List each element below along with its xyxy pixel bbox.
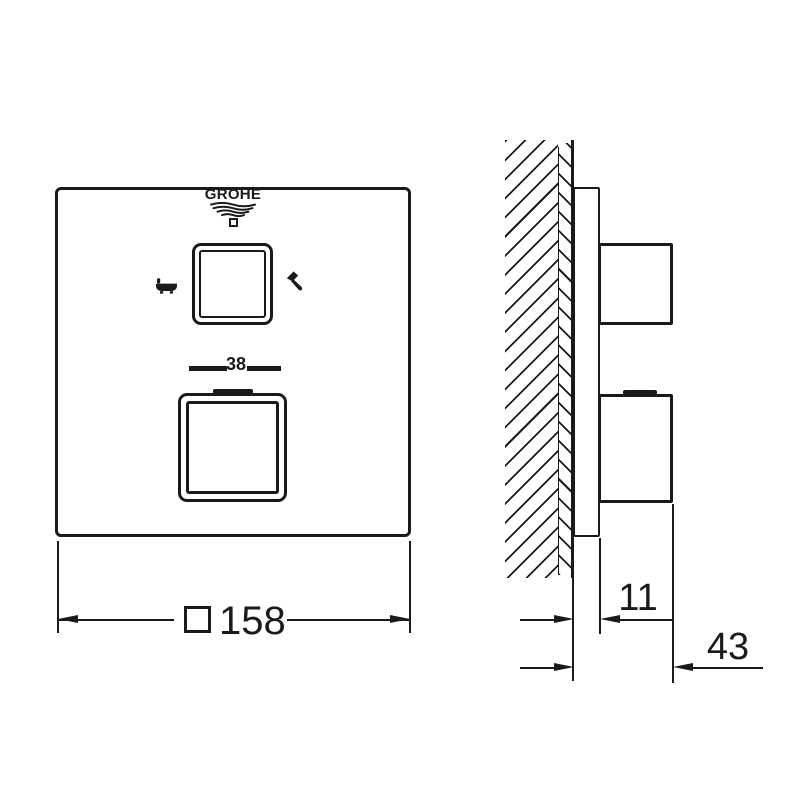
diverter-knob-inner-edge [199, 250, 266, 318]
dim-11-label: 11 [610, 581, 666, 615]
temp-scale-right-dash [247, 366, 281, 371]
wall-hatch-centerline [558, 147, 560, 573]
grohe-square-icon [229, 218, 238, 227]
temp-scale-left-dash [189, 366, 227, 371]
dim-11-arrow-left [554, 615, 574, 623]
diverter-knob-front [192, 243, 273, 325]
thermostat-knob-side [598, 394, 673, 503]
knob-grip-tab-side [623, 390, 657, 395]
thermostat-knob-front [178, 393, 287, 502]
technical-drawing: GROHE 38 [0, 0, 800, 800]
handshower-icon [285, 270, 308, 293]
thermostat-knob-inner-edge [186, 401, 279, 494]
wall-hatch-outer [505, 140, 558, 578]
dim-43-arrow-left [554, 663, 574, 671]
bathtub-icon [155, 275, 178, 294]
grohe-wordmark: GROHE [203, 187, 263, 202]
dim-43-label: 43 [700, 630, 756, 664]
grohe-waves-icon [209, 202, 257, 217]
faceplate-side-view [573, 187, 600, 537]
knob-grip-tab-front [213, 389, 253, 394]
diverter-knob-side [598, 243, 673, 325]
dim-11-arrow-right [600, 615, 620, 623]
dim-158-label: 158 [219, 603, 286, 639]
dim-11-line-left [520, 619, 554, 621]
wall-hatch-inner [558, 143, 572, 575]
dim-158-arrow-left [58, 615, 78, 623]
square-symbol [184, 606, 211, 633]
dim-43-arrow-right [673, 663, 693, 671]
knob-front-extension-line [672, 504, 674, 683]
dim-158-arrow-right [390, 615, 410, 623]
temp-38-label: 38 [223, 355, 249, 374]
dim-43-line-left [520, 667, 554, 669]
